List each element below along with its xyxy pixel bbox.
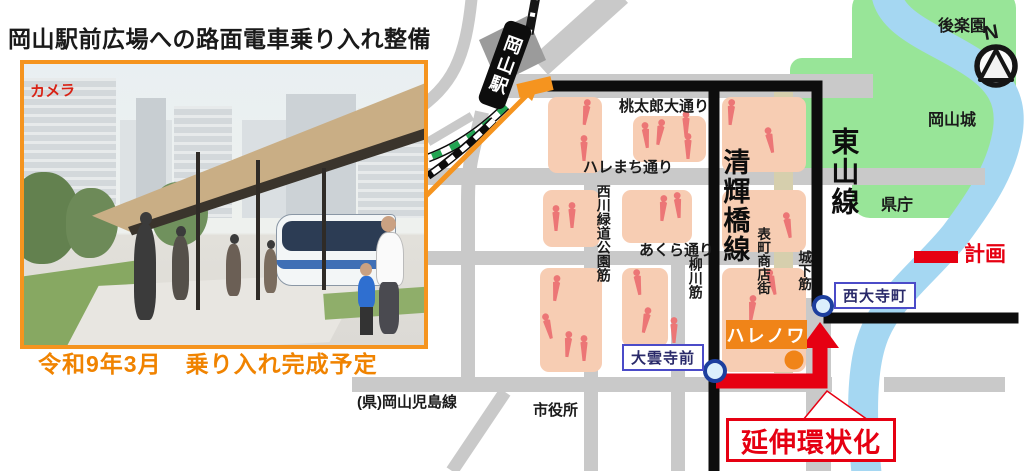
extension-callout-label: 延伸環状化 (726, 418, 896, 462)
street-label-omotecho: 表町商店街 (755, 227, 769, 295)
street-label-yanagawa: 柳川筋 (688, 257, 703, 299)
child-silhouette (360, 263, 372, 276)
pedestrian-silhouette (134, 224, 156, 320)
pedestrian-silhouette (267, 240, 275, 249)
man-silhouette (381, 216, 396, 232)
station-plaza-rendering-image: カメラ (20, 60, 428, 349)
line-label-higashiyama: 東山線 (829, 127, 858, 217)
canopy-post (196, 152, 200, 310)
daiunjimae-stop-marker (705, 361, 725, 381)
road-pref-kojima-east (884, 377, 1005, 392)
place-label-pref-office: 県庁 (881, 198, 913, 215)
pedestrian-silhouette (226, 244, 241, 296)
child-silhouette (358, 276, 375, 308)
street-label-momotaro: 桃太郎大通り (619, 99, 709, 115)
pedestrian-silhouette (172, 236, 189, 300)
stop-label-daiunjimae: 大雲寺前 (622, 344, 704, 371)
road-haremachi (428, 168, 985, 185)
camera-store-sign: カメラ (30, 79, 76, 102)
plan-legend-swatch (914, 251, 958, 263)
saidaijicho-stop-marker (814, 297, 832, 315)
page-title: 岡山駅前広場への路面電車乗り入れ整備 (8, 27, 431, 51)
harenowa-venue-label: ハレノワ (726, 320, 807, 349)
stop-label-saidaijicho: 西大寺町 (834, 282, 916, 309)
pedestrian-silhouette (230, 234, 239, 244)
pedestrian-silhouette (264, 249, 277, 293)
legend-plan-label: 計画 (964, 244, 1006, 266)
street-label-nishigawa: 西川緑道公園筋 (596, 184, 611, 282)
tram-windows (282, 221, 390, 251)
man-silhouette (379, 282, 399, 334)
street-label-haremachi: ハレまち通り (583, 160, 673, 176)
canopy-post (322, 168, 326, 290)
canopy-post (256, 160, 260, 300)
jr-rail-southwest (428, 120, 494, 176)
north-compass-icon (977, 47, 1015, 85)
completion-caption: 令和9年3月 乗り入れ完成予定 (38, 352, 378, 376)
man-silhouette (376, 232, 404, 286)
place-label-korakuen: 後楽園 (938, 19, 986, 36)
place-label-city-hall: 市役所 (533, 403, 578, 419)
child-silhouette (360, 307, 373, 335)
harenowa-dot-marker (785, 351, 804, 370)
tram-extension-infographic: カメラ 岡山駅前広場への路面電車 (0, 0, 1024, 471)
street-label-shiroshita: 城下筋 (796, 250, 810, 291)
place-label-okayama-castle: 岡山城 (928, 113, 976, 130)
road-label-pref-kojima: (県)岡山児島線 (357, 395, 457, 411)
line-label-seikibashi: 清輝橋線 (720, 148, 748, 264)
